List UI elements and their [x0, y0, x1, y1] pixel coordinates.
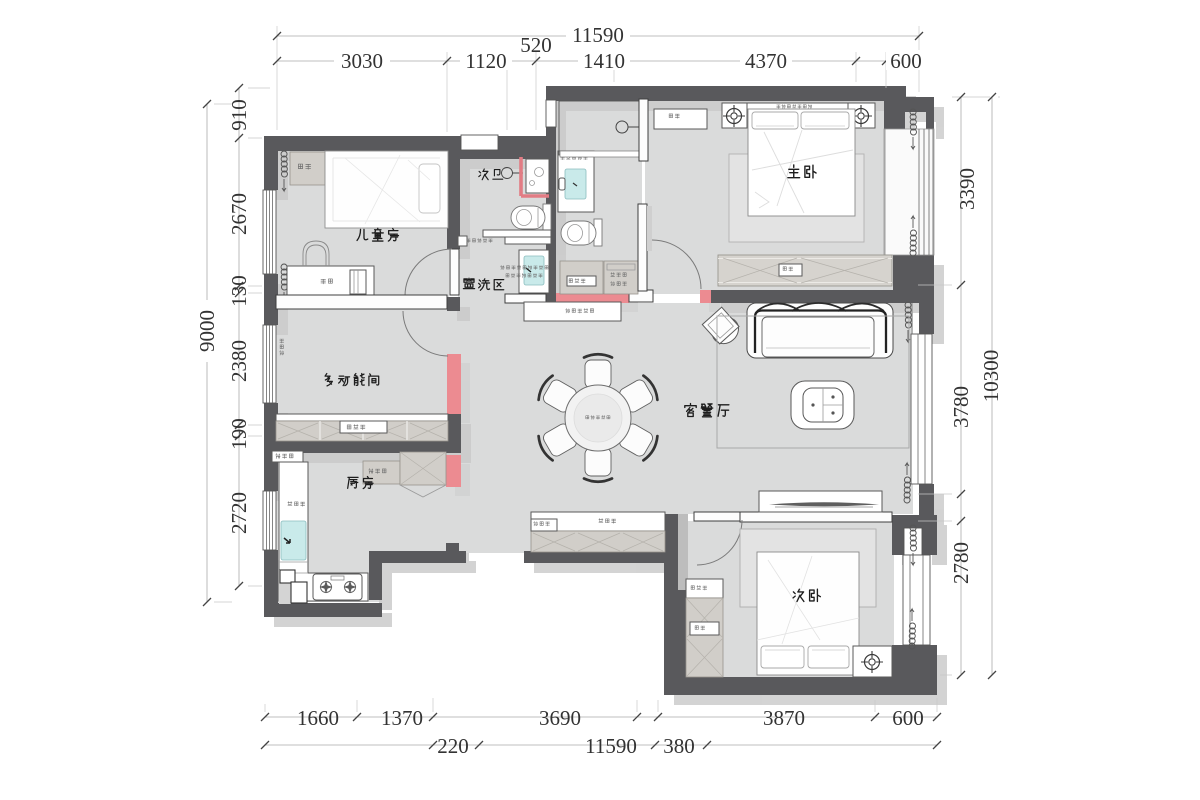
svg-text:4370: 4370	[745, 49, 787, 73]
svg-text:3870: 3870	[763, 706, 805, 730]
svg-text:10300: 10300	[979, 350, 1003, 403]
svg-text:220: 220	[437, 734, 469, 758]
svg-text:600: 600	[890, 49, 922, 73]
svg-text:2670: 2670	[227, 193, 251, 235]
svg-text:600: 600	[892, 706, 924, 730]
svg-text:1120: 1120	[465, 49, 506, 73]
svg-text:3690: 3690	[539, 706, 581, 730]
svg-text:520: 520	[520, 33, 552, 57]
svg-text:380: 380	[663, 734, 695, 758]
svg-text:1660: 1660	[297, 706, 339, 730]
svg-text:2380: 2380	[227, 340, 251, 382]
svg-text:3030: 3030	[341, 49, 383, 73]
svg-text:11590: 11590	[585, 734, 637, 758]
svg-text:1370: 1370	[381, 706, 423, 730]
svg-text:3390: 3390	[955, 168, 979, 210]
svg-text:3780: 3780	[949, 386, 973, 428]
svg-text:9000: 9000	[195, 310, 219, 352]
svg-text:11590: 11590	[572, 23, 624, 47]
svg-text:1410: 1410	[583, 49, 625, 73]
svg-text:2720: 2720	[227, 492, 251, 534]
svg-text:190: 190	[227, 418, 251, 450]
svg-text:2780: 2780	[949, 542, 973, 584]
svg-text:130: 130	[227, 275, 251, 307]
svg-text:910: 910	[227, 99, 251, 131]
